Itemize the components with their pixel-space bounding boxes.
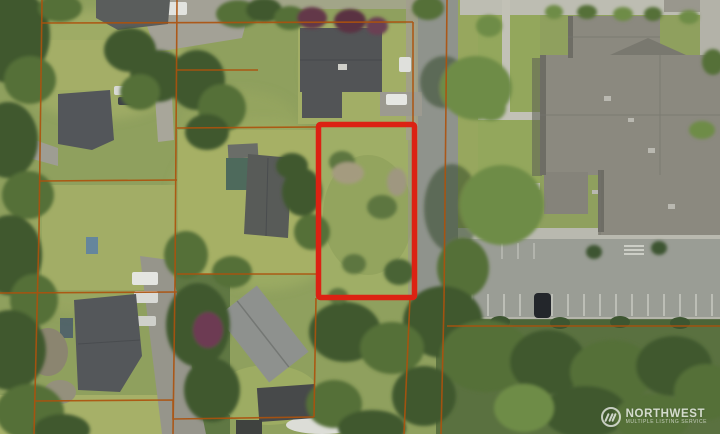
skylight (338, 64, 347, 70)
tree-canopy (294, 214, 330, 250)
shrub (613, 7, 633, 21)
aerial-photo (0, 0, 720, 434)
house-roof (302, 92, 342, 118)
tree-canopy (276, 153, 308, 179)
boundary-line (40, 180, 177, 181)
tree-canopy (185, 114, 229, 150)
dirt-patch (387, 168, 407, 196)
boundary-line (0, 292, 177, 293)
tree-canopy (494, 384, 554, 432)
blue-tarp (86, 237, 98, 254)
tree-canopy (120, 74, 160, 110)
rooftop-unit (668, 204, 675, 209)
tree-canopy (212, 256, 252, 288)
white-van (132, 272, 158, 285)
shrub (689, 121, 715, 139)
tree-canopy (2, 171, 54, 219)
shrub (679, 10, 699, 24)
dark-car (534, 293, 551, 318)
tree-canopy (476, 95, 506, 121)
dirt-patch (332, 162, 364, 184)
boundary-line (42, 22, 413, 23)
rooftop-unit (604, 96, 611, 101)
tree-canopy (460, 165, 544, 245)
boundary-line (177, 127, 318, 128)
hedge (550, 317, 570, 329)
rooftop-unit (648, 148, 655, 153)
outbuilding-roof (236, 420, 262, 434)
white-car (386, 94, 407, 105)
white-car (399, 57, 411, 72)
house-roof (58, 90, 114, 150)
shrub (367, 195, 397, 219)
green-roof-section (226, 158, 250, 190)
shrub (384, 259, 414, 285)
pavement (700, 0, 720, 58)
white-car (136, 316, 156, 326)
red-tree-canopy (334, 9, 366, 33)
red-tree-canopy (297, 7, 327, 29)
tree-canopy (184, 358, 240, 422)
shrub (545, 5, 563, 19)
tree-canopy (360, 322, 424, 374)
tree-canopy (392, 366, 456, 426)
tree-canopy (4, 56, 56, 104)
parking-island-tree (651, 241, 667, 255)
red-tree-canopy (366, 17, 388, 35)
red-tree-canopy (193, 312, 223, 348)
tree-canopy (164, 231, 208, 279)
shrub (577, 5, 597, 19)
rooftop-unit (592, 190, 598, 194)
rooftop-unit (628, 118, 634, 122)
parking-island-tree (586, 245, 602, 259)
hedge (670, 317, 690, 329)
tree-canopy (476, 15, 502, 37)
shrub (644, 7, 662, 21)
aerial-map-view: NORTHWEST MULTIPLE LISTING SERVICE (0, 0, 720, 434)
shrub (342, 254, 366, 274)
